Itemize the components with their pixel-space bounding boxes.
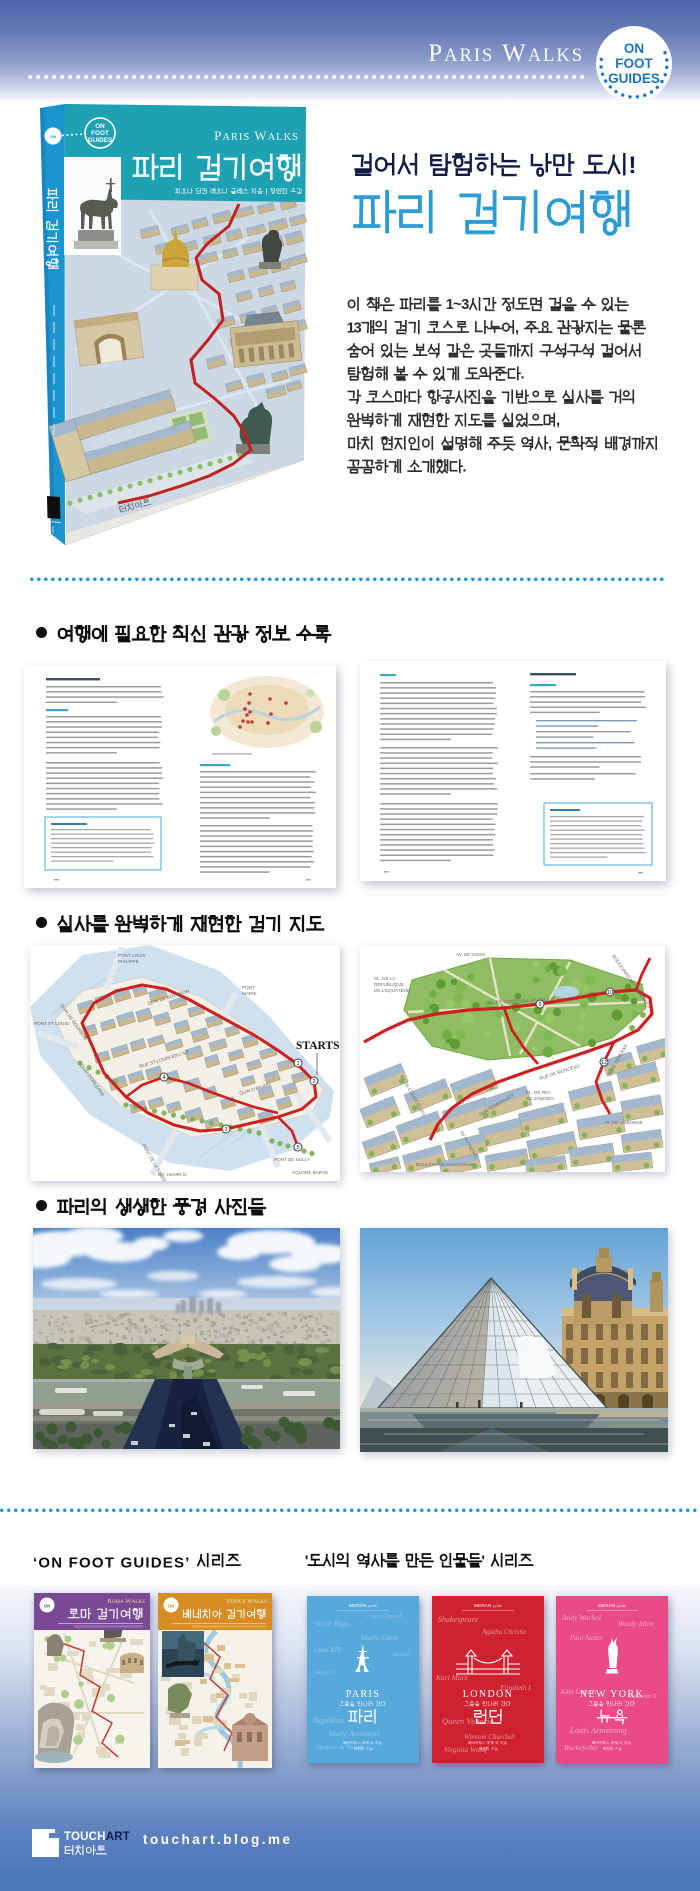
svg-text:3: 3: [461, 297, 469, 313]
svg-text:,: ,: [556, 413, 560, 429]
svg-text:10: 10: [607, 990, 613, 996]
svg-text:ON: ON: [50, 134, 56, 139]
svg-text:': ': [305, 1553, 308, 1570]
svg-text:Woody Allen: Woody Allen: [618, 1620, 654, 1628]
svg-text:‘ON FOOT GUIDES’: ‘ON FOOT GUIDES’: [33, 1555, 191, 1572]
svg-text:12: 12: [601, 1060, 607, 1066]
svg-text:NEW YORK: NEW YORK: [580, 1689, 644, 1700]
svg-text:BOULEVARD HAUSSMANN: BOULEVARD HAUSSMANN: [416, 1162, 475, 1167]
svg-text:PL. DE RIO: PL. DE RIO: [526, 1090, 550, 1095]
svg-text:PARIS: PARIS: [346, 1689, 380, 1700]
svg-text:|: |: [266, 188, 268, 195]
svg-text:.: .: [520, 367, 524, 383]
svg-text:PONT: PONT: [242, 985, 255, 990]
svg-text:GUIDES: GUIDES: [88, 137, 113, 144]
svg-text:,: ,: [548, 436, 552, 452]
svg-text:PONT LOUIS: PONT LOUIS: [118, 953, 146, 958]
svg-text:PONT ST LOUIS: PONT ST LOUIS: [34, 1021, 69, 1026]
svg-text:AV. DE VIGNY: AV. DE VIGNY: [456, 952, 486, 957]
svg-text:ON: ON: [624, 41, 644, 56]
svg-text:PHILIPPE: PHILIPPE: [118, 959, 139, 964]
svg-text:Shakespeare: Shakespeare: [438, 1615, 479, 1624]
svg-text:REPUBLIQUE: REPUBLIQUE: [374, 982, 404, 987]
svg-text:Louis XIV: Louis XIV: [312, 1646, 342, 1654]
svg-text:ROMA WALKS: ROMA WALKS: [107, 1598, 145, 1605]
svg-text:9: 9: [538, 1002, 541, 1008]
svg-text:VENICE WALKS: VENICE WALKS: [226, 1598, 267, 1605]
svg-text:STARTS: STARTS: [296, 1040, 339, 1052]
svg-text:Mozart: Mozart: [392, 1652, 409, 1658]
svg-text:BD. HENRI IV: BD. HENRI IV: [158, 1172, 188, 1177]
svg-text:Rockefeller: Rockefeller: [563, 1743, 598, 1752]
svg-text:Marie Curie: Marie Curie: [360, 1633, 399, 1642]
svg-text:4: 4: [162, 1075, 165, 1081]
svg-text:3: 3: [224, 1127, 227, 1133]
svg-text:PONT DE SULLY: PONT DE SULLY: [274, 1157, 310, 1162]
svg-text:3: 3: [353, 320, 361, 336]
svg-text:Winston Churchill: Winston Churchill: [464, 1733, 515, 1741]
svg-text:Andy Warhol: Andy Warhol: [561, 1613, 601, 1622]
svg-text:2: 2: [312, 1079, 315, 1085]
svg-text:ON: ON: [44, 1604, 50, 1609]
svg-text:FOOT: FOOT: [615, 56, 653, 71]
svg-text:Marie Antoinette: Marie Antoinette: [328, 1729, 381, 1738]
svg-text:Paul Auster: Paul Auster: [569, 1634, 603, 1642]
svg-text:SQUARE BARYE: SQUARE BARYE: [292, 1170, 328, 1175]
svg-text:LONDON: LONDON: [463, 1689, 514, 1700]
svg-text:GUIDES: GUIDES: [608, 71, 660, 86]
svg-text:1: 1: [296, 1061, 299, 1067]
svg-text:': ': [481, 1553, 485, 1570]
svg-text:DE L'EQUATEUR: DE L'EQUATEUR: [374, 988, 411, 993]
svg-text:Honoré de Balzac: Honoré de Balzac: [316, 1744, 364, 1751]
svg-text:ON: ON: [95, 123, 105, 130]
svg-text:!: !: [628, 153, 636, 179]
svg-text:Agatha Christie: Agatha Christie: [481, 1628, 527, 1636]
svg-text:PL. DE LA: PL. DE LA: [374, 976, 396, 981]
svg-text:FOOT: FOOT: [91, 130, 109, 137]
svg-text:ON: ON: [168, 1604, 174, 1609]
svg-text:Coco Chanel: Coco Chanel: [367, 1613, 401, 1620]
svg-text:Henry IV: Henry IV: [314, 1670, 336, 1676]
svg-text:,: ,: [515, 320, 519, 336]
svg-text:Louis Armstrong: Louis Armstrong: [569, 1725, 627, 1735]
svg-text:DE JANEIRO: DE JANEIRO: [526, 1096, 554, 1101]
svg-text:Victor Hugo: Victor Hugo: [315, 1620, 350, 1628]
svg-text:5: 5: [296, 1145, 299, 1151]
svg-text:MARIE: MARIE: [242, 991, 257, 996]
svg-text:.: .: [462, 460, 466, 476]
svg-text:Napoléon: Napoléon: [312, 1716, 344, 1725]
svg-text:R. DE LISBONNE: R. DE LISBONNE: [606, 1120, 643, 1125]
